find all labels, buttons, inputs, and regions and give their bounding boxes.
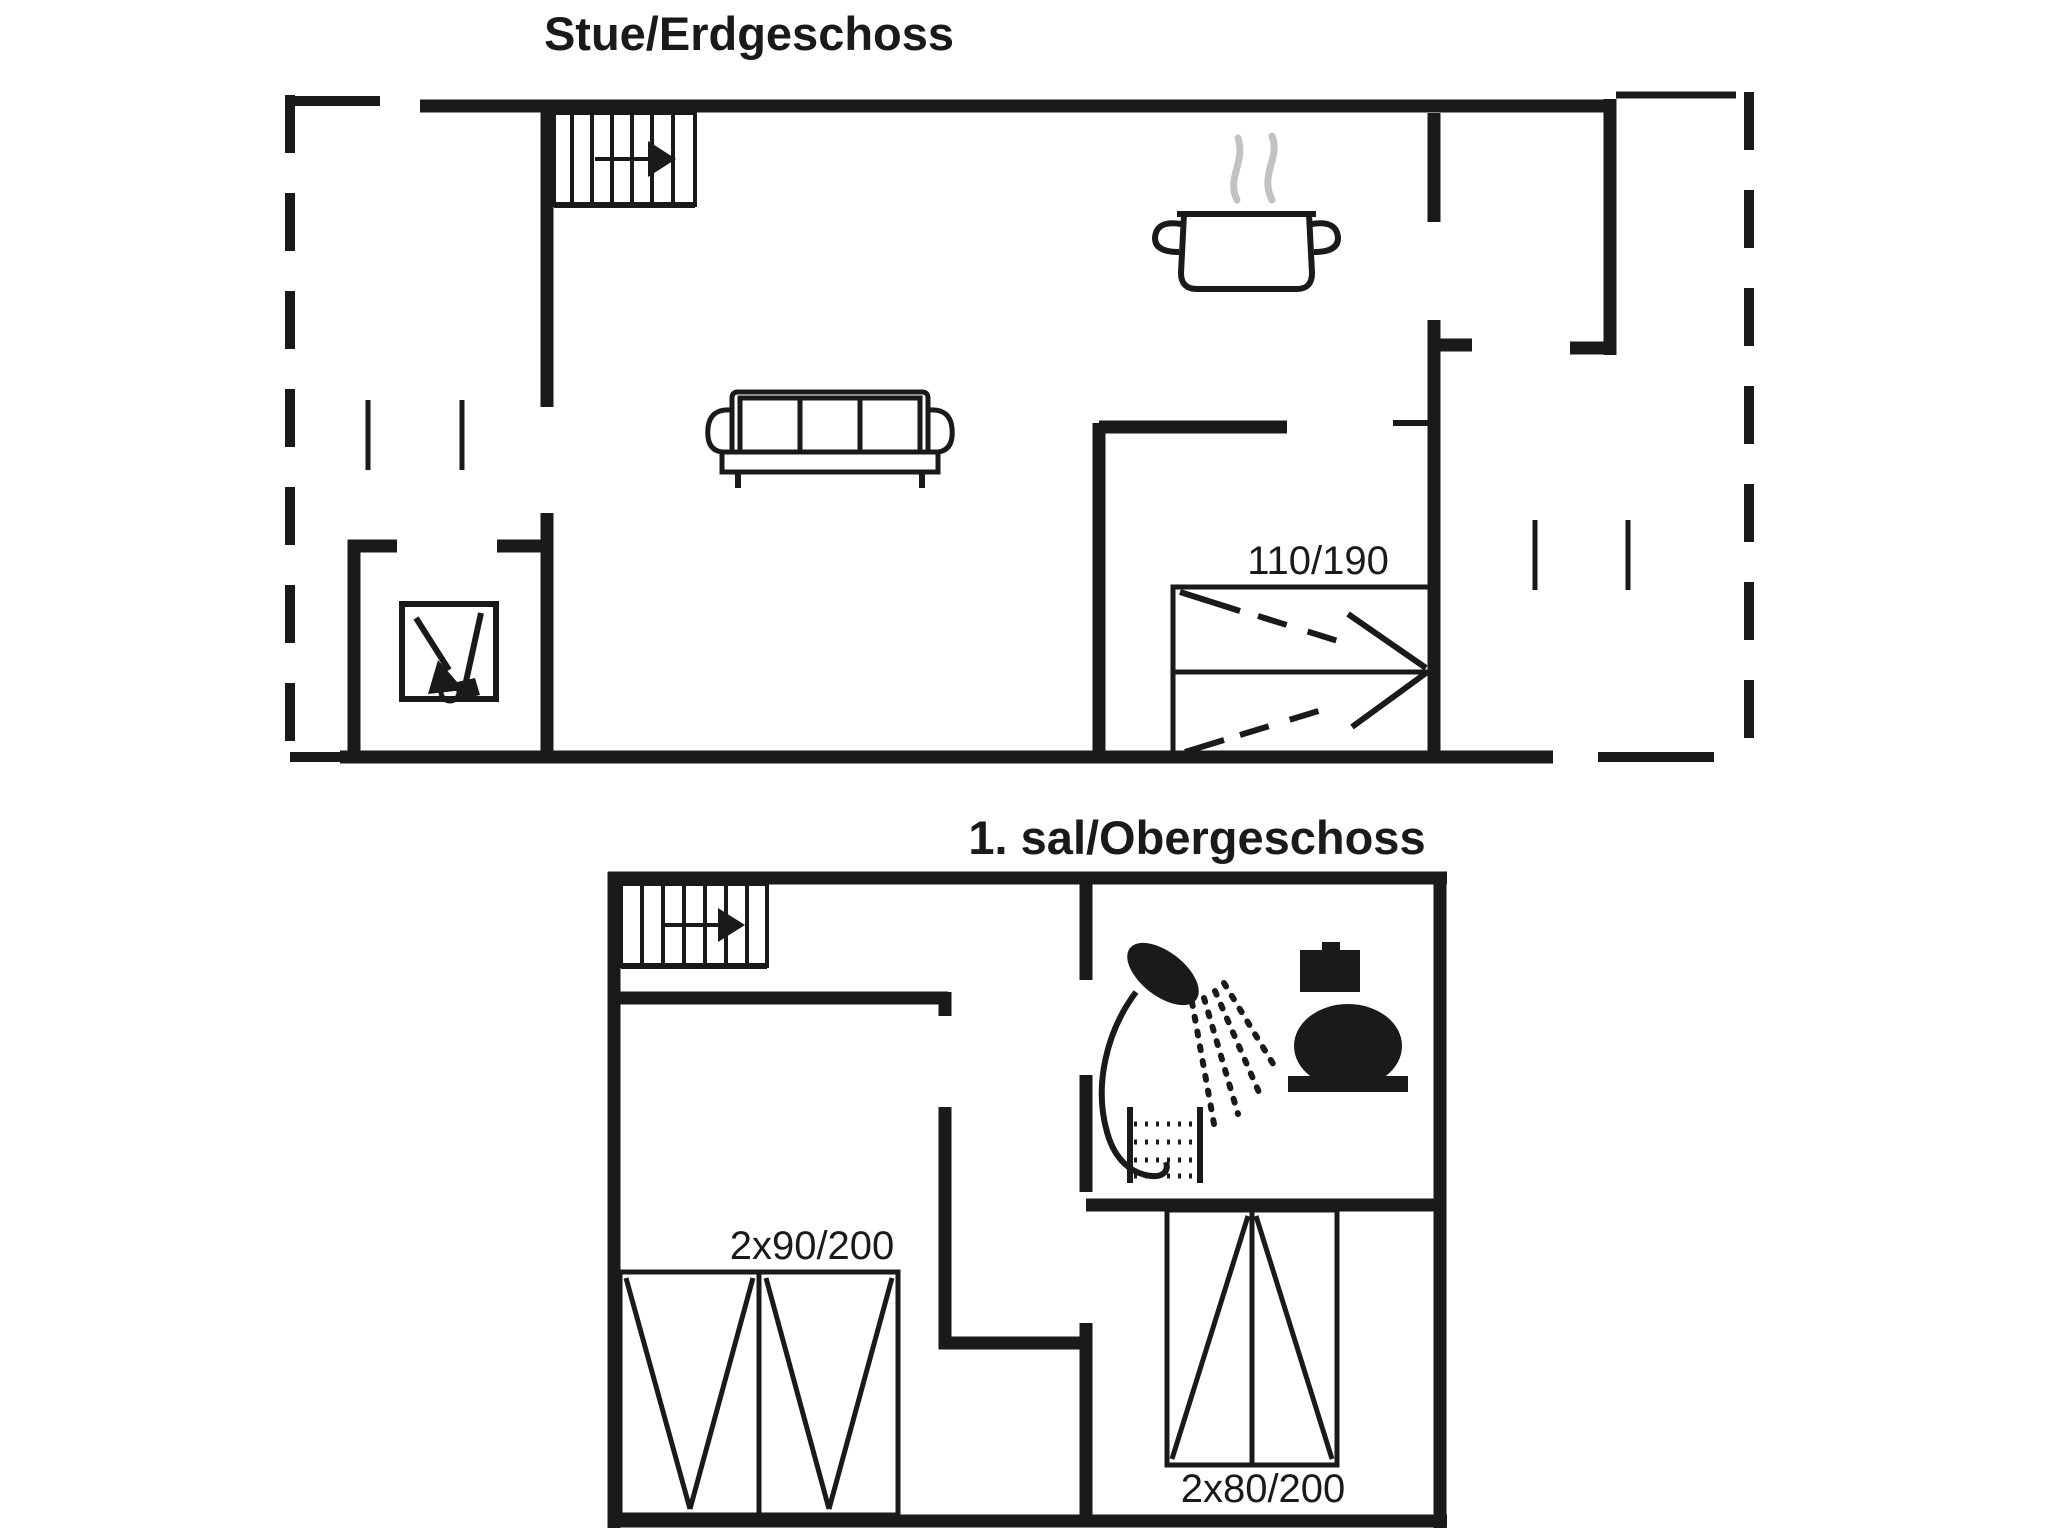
floorplan-page: Stue/Erdgeschoss xyxy=(0,0,2048,1536)
double-bed-icon xyxy=(620,1272,898,1515)
ground-floor-title: Stue/Erdgeschoss xyxy=(544,7,954,60)
cooking-pot-icon xyxy=(1155,136,1338,289)
ground-floor-plan: Stue/Erdgeschoss xyxy=(288,7,1749,757)
upper-right-bed-size-label: 2x80/200 xyxy=(1181,1467,1346,1511)
toilet-icon xyxy=(1288,942,1408,1092)
upper-floor-title: 1. sal/Obergeschoss xyxy=(968,811,1425,864)
ground-floor-terrace-dashed-walls xyxy=(288,92,1749,757)
upper-left-bed-size-label: 2x90/200 xyxy=(730,1224,895,1268)
sofa-icon xyxy=(708,392,952,488)
stairs-up-icon xyxy=(621,884,767,966)
double-bed-icon xyxy=(1173,587,1430,757)
double-bed-icon xyxy=(1167,1210,1337,1465)
ground-bed-size-label: 110/190 xyxy=(1247,539,1389,583)
ground-floor-walls xyxy=(340,99,1616,757)
stairs-up-icon xyxy=(554,113,695,205)
wood-stove-icon xyxy=(402,604,496,701)
upper-floor-plan: 1. sal/Obergeschoss xyxy=(608,811,1447,1528)
floorplan-drawing: Stue/Erdgeschoss xyxy=(0,0,2048,1536)
